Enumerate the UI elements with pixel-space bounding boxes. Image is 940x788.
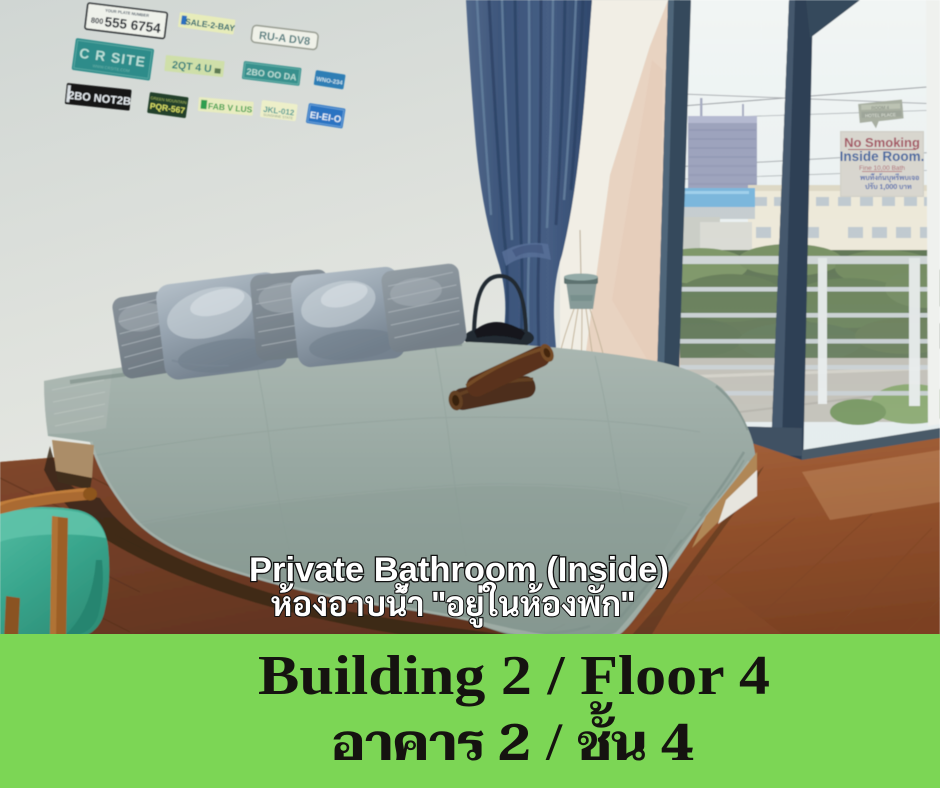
svg-text:800: 800 <box>90 16 104 26</box>
svg-text:Building 2 / Floor 4: Building 2 / Floor 4 <box>258 645 770 707</box>
svg-text:Private Bathroom (Inside): Private Bathroom (Inside) <box>249 551 669 589</box>
